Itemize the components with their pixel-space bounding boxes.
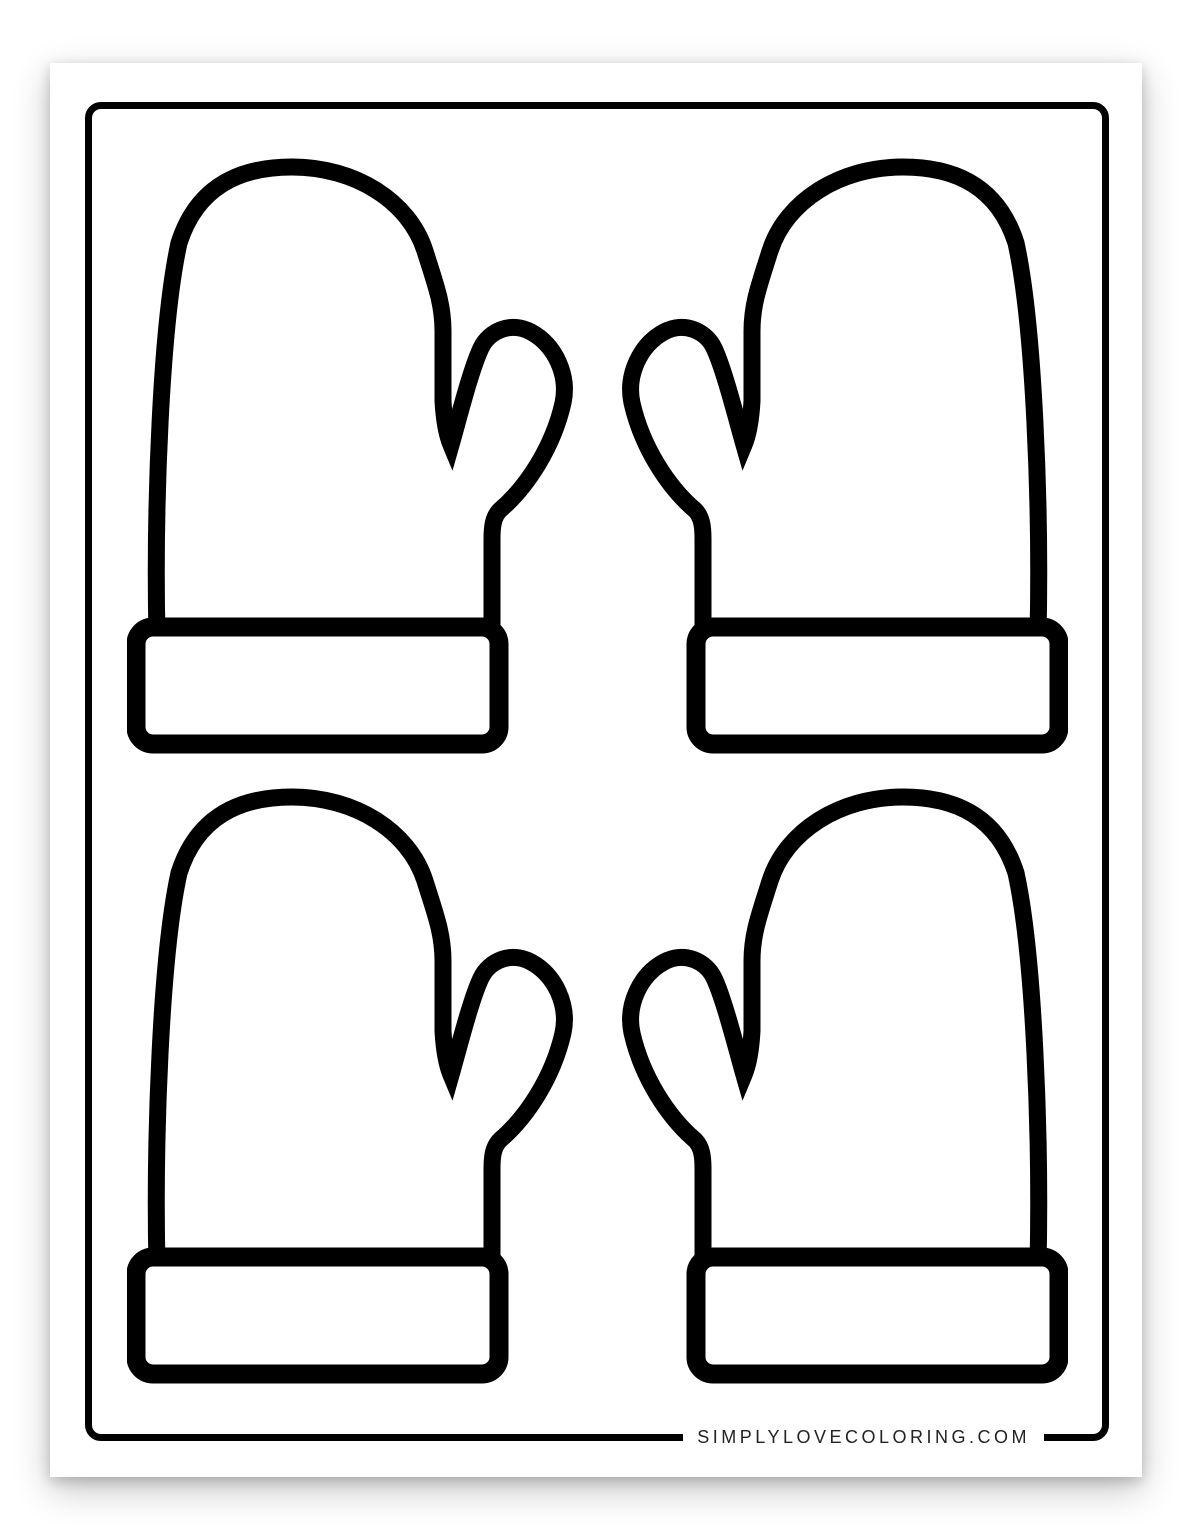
mitten-top-left <box>127 155 587 755</box>
footer-website-text: SIMPLYLOVECOLORING.COM <box>683 1424 1044 1450</box>
mitten-top-right <box>608 155 1068 755</box>
coloring-page-sheet: SIMPLYLOVECOLORING.COM <box>50 63 1142 1477</box>
mitten-bottom-left <box>127 785 587 1385</box>
coloring-page-stage: SIMPLYLOVECOLORING.COM <box>0 0 1187 1534</box>
mitten-bottom-right <box>608 785 1068 1385</box>
